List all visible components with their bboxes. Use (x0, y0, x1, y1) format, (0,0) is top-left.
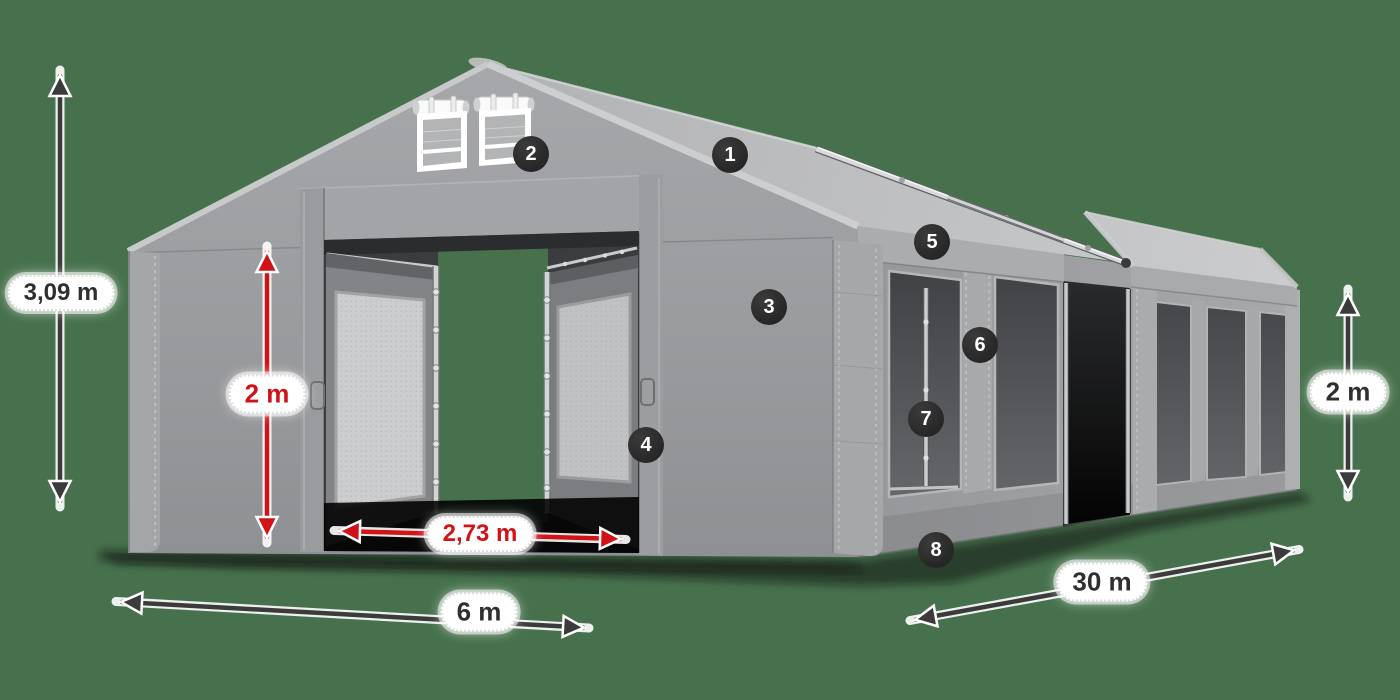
side-open-doorway (1063, 281, 1130, 527)
vent-window-left (413, 96, 470, 172)
side-pole-cover (1247, 305, 1258, 477)
side-pole-cover (1192, 299, 1205, 483)
side-window (1260, 312, 1287, 475)
door-handle-right (641, 379, 654, 405)
side-pole-cover (963, 269, 992, 494)
dimension-label-side-length: 30 m (1056, 563, 1147, 602)
dimension-label-front-width: 6 m (441, 593, 518, 632)
dimension-label-entrance-width: 2,73 m (427, 516, 534, 552)
dimension-label-right-side-height: 2 m (1310, 373, 1387, 412)
dimension-label-total-height: 3,09 m (8, 275, 115, 311)
door-handle-left (311, 382, 324, 409)
hotspot-marker-3[interactable]: 3 (751, 289, 787, 325)
hotspot-marker-6[interactable]: 6 (962, 327, 998, 363)
hotspot-marker-7[interactable]: 7 (908, 401, 944, 437)
tent-illustration (0, 0, 1400, 700)
corner-cover-left (128, 251, 160, 552)
hotspot-marker-2[interactable]: 2 (513, 136, 549, 172)
hotspot-marker-4[interactable]: 4 (628, 427, 664, 463)
hotspot-marker-1[interactable]: 1 (712, 137, 748, 173)
open-passage (438, 239, 548, 527)
entrance-opening (324, 231, 639, 553)
front-width-arrow (116, 602, 589, 629)
side-window (995, 277, 1058, 490)
side-window (1207, 307, 1246, 480)
dimension-label-left-side-height: 2 m (229, 375, 306, 414)
hotspot-marker-5[interactable]: 5 (914, 224, 950, 260)
hotspot-marker-8[interactable]: 8 (918, 532, 954, 568)
side-corner-cover (1285, 288, 1300, 490)
tent-dimension-diagram: 3,09 m 2 m 2,73 m 6 m 30 m 2 m 1 2 3 4 5… (0, 0, 1400, 700)
